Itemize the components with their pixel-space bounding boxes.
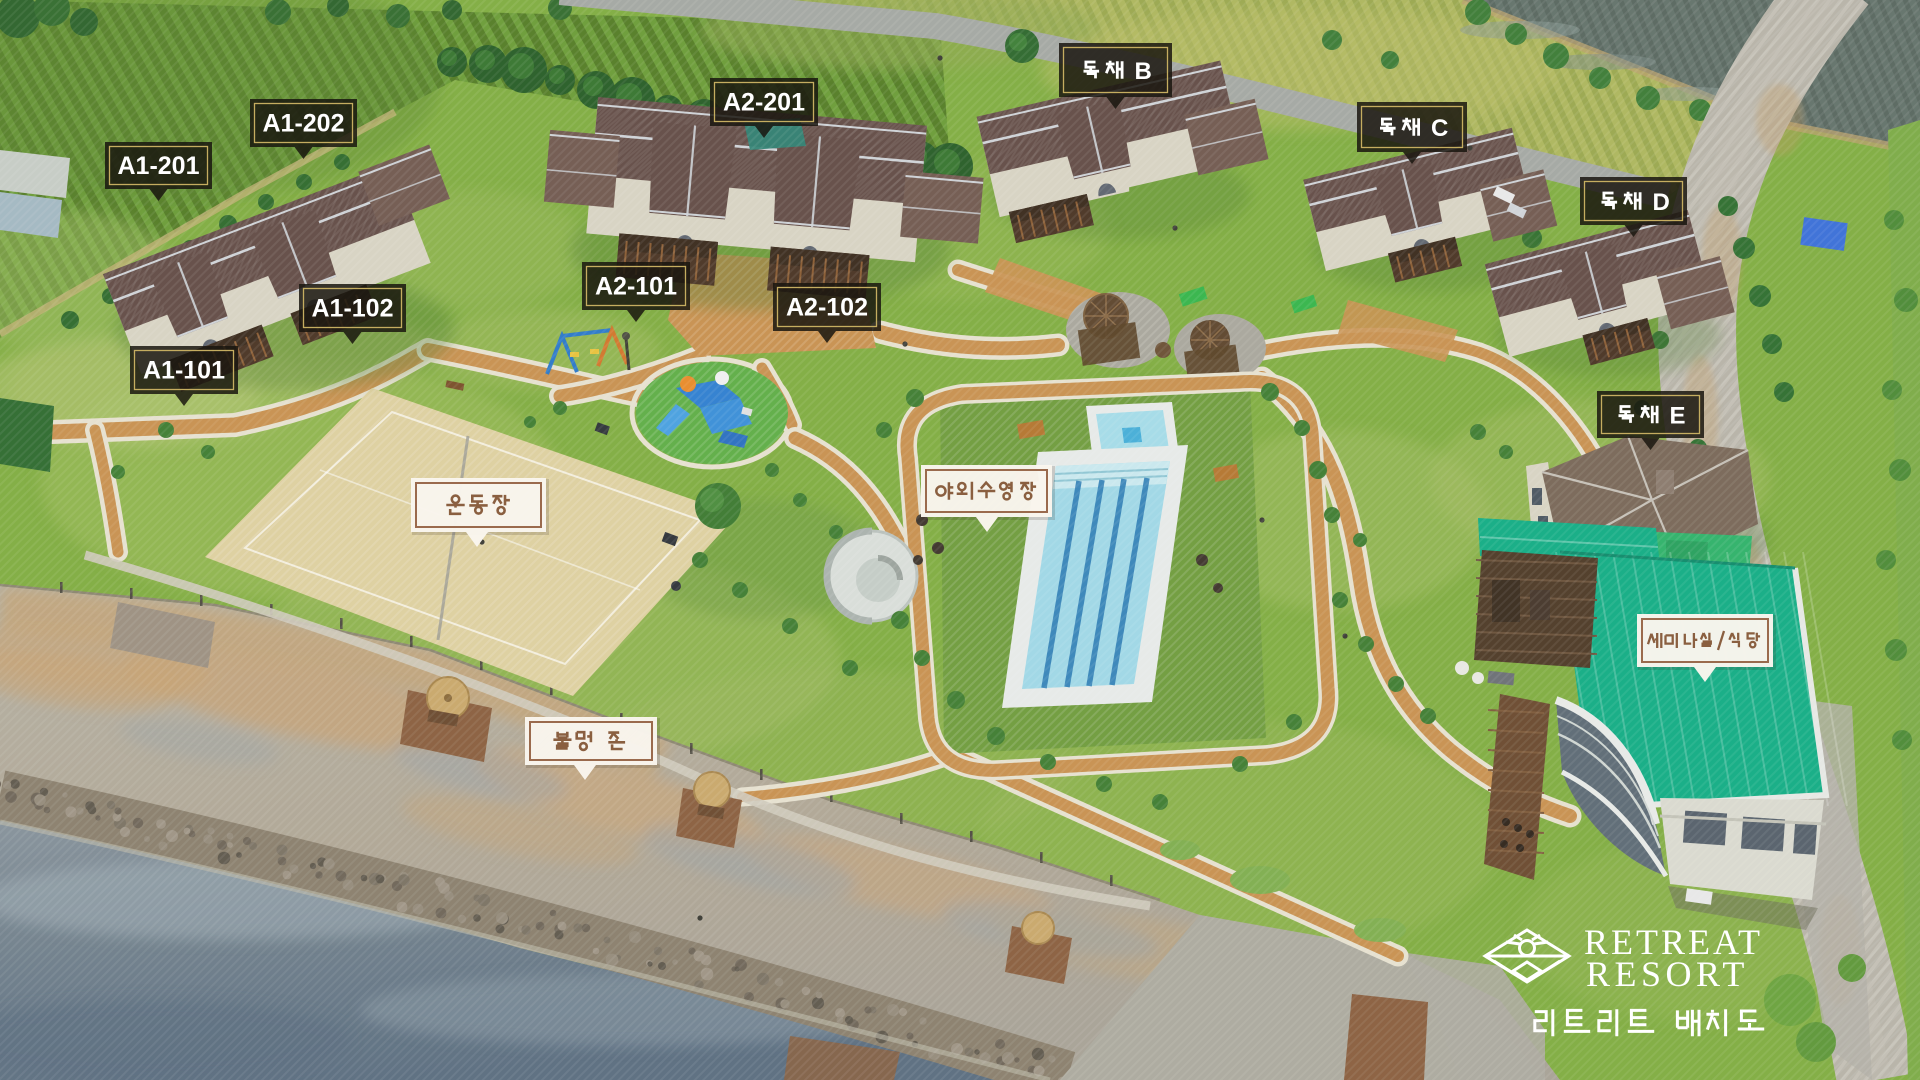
svg-text:B: B [1135,58,1152,85]
svg-text:A1-202: A1-202 [263,110,345,138]
svg-text:A2-102: A2-102 [786,294,868,322]
svg-text:D: D [1653,189,1670,216]
svg-text:RESORT: RESORT [1586,954,1749,994]
svg-text:C: C [1431,115,1448,142]
svg-text:E: E [1670,403,1686,430]
svg-text:A2-101: A2-101 [595,273,677,301]
svg-text:A1-201: A1-201 [118,152,200,180]
svg-text:A2-201: A2-201 [723,89,805,117]
svg-text:A1-101: A1-101 [143,357,225,385]
svg-text:A1-102: A1-102 [312,295,394,323]
